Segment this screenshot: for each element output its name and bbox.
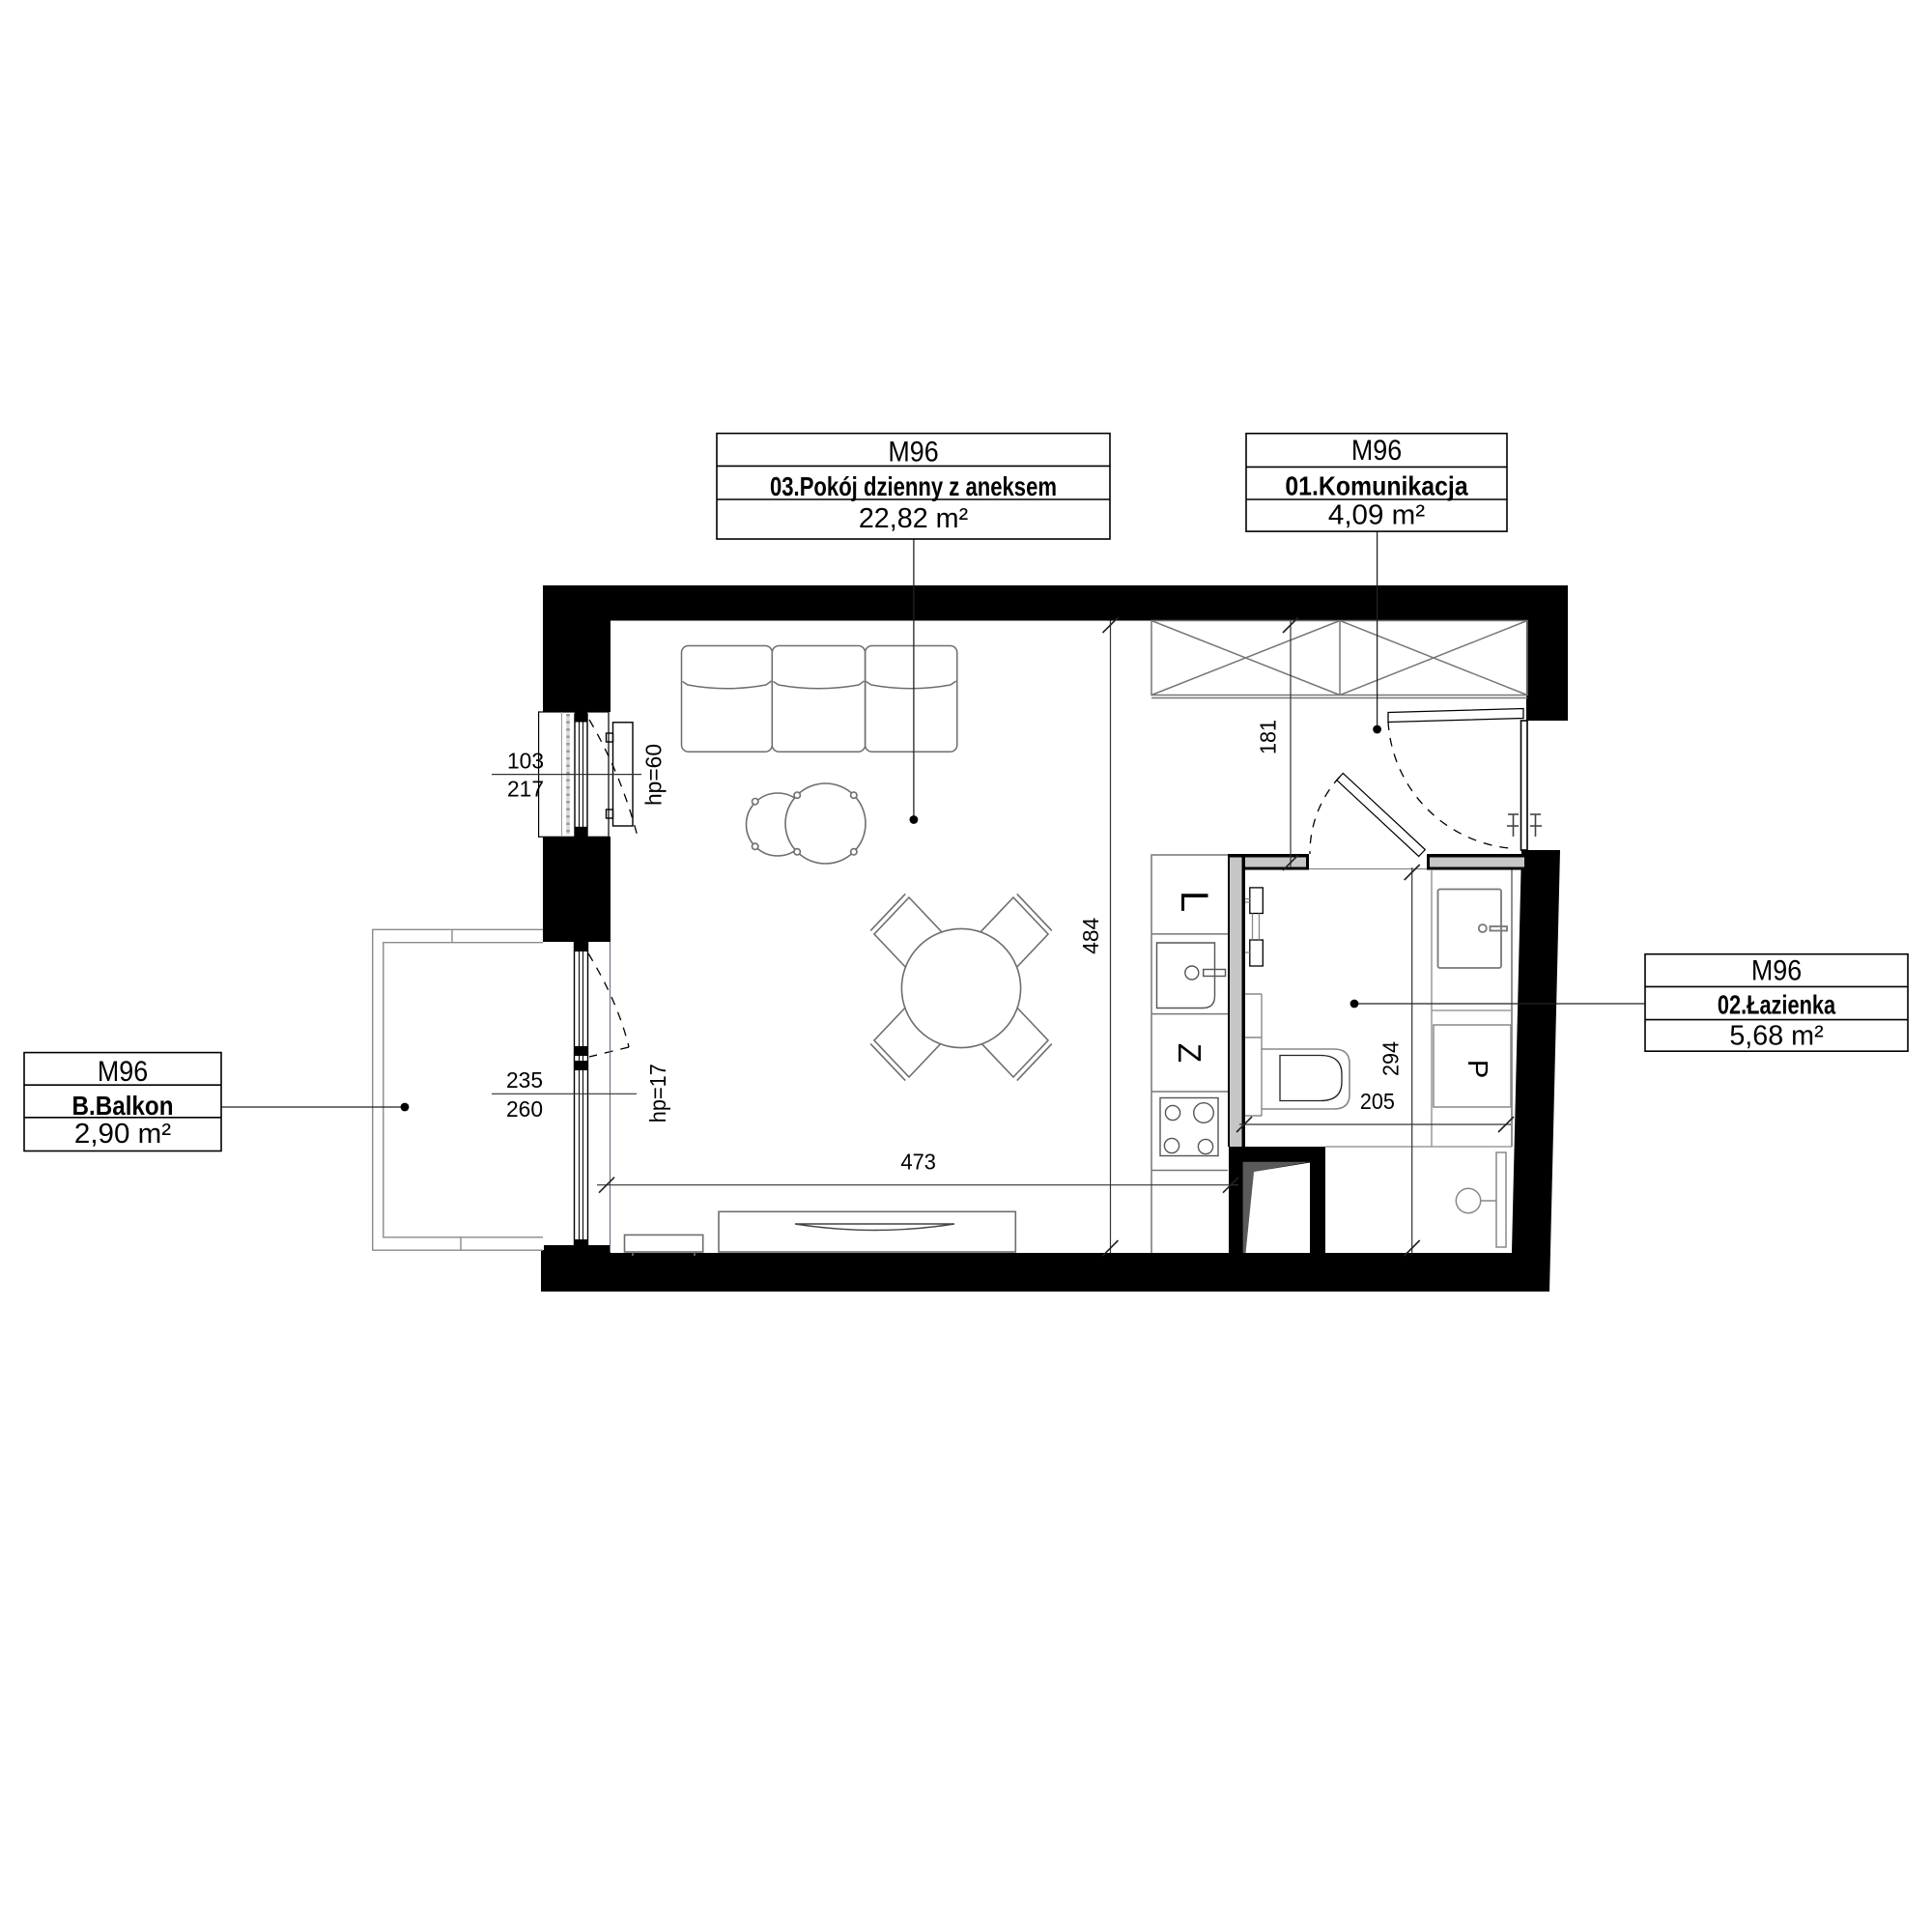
svg-text:181: 181 [1256,720,1281,754]
svg-text:02.Łazienka: 02.Łazienka [1718,990,1836,1020]
svg-text:Z: Z [1172,1043,1207,1063]
svg-text:M96: M96 [1751,955,1802,987]
svg-text:P: P [1462,1060,1492,1078]
svg-text:235: 235 [506,1067,543,1093]
svg-text:M96: M96 [888,436,938,468]
svg-text:M96: M96 [1351,435,1402,467]
svg-text:hp=60: hp=60 [641,744,667,806]
svg-text:103: 103 [507,748,544,773]
svg-text:217: 217 [507,776,544,801]
svg-text:2,90 m²: 2,90 m² [74,1119,172,1150]
svg-text:01.Komunikacja: 01.Komunikacja [1285,471,1468,501]
svg-text:260: 260 [506,1096,543,1122]
svg-text:473: 473 [901,1149,936,1174]
svg-text:L: L [1173,891,1215,912]
svg-text:B.Balkon: B.Balkon [72,1091,174,1121]
svg-text:4,09 m²: 4,09 m² [1328,500,1426,531]
svg-text:22,82 m²: 22,82 m² [859,503,969,534]
svg-text:205: 205 [1360,1089,1395,1114]
svg-text:484: 484 [1078,918,1103,954]
svg-text:03.Pokój dzienny z aneksem: 03.Pokój dzienny z aneksem [770,471,1057,501]
svg-text:294: 294 [1378,1041,1404,1076]
svg-text:5,68 m²: 5,68 m² [1729,1021,1824,1052]
svg-text:hp=17: hp=17 [645,1064,670,1122]
svg-text:M96: M96 [98,1056,148,1088]
